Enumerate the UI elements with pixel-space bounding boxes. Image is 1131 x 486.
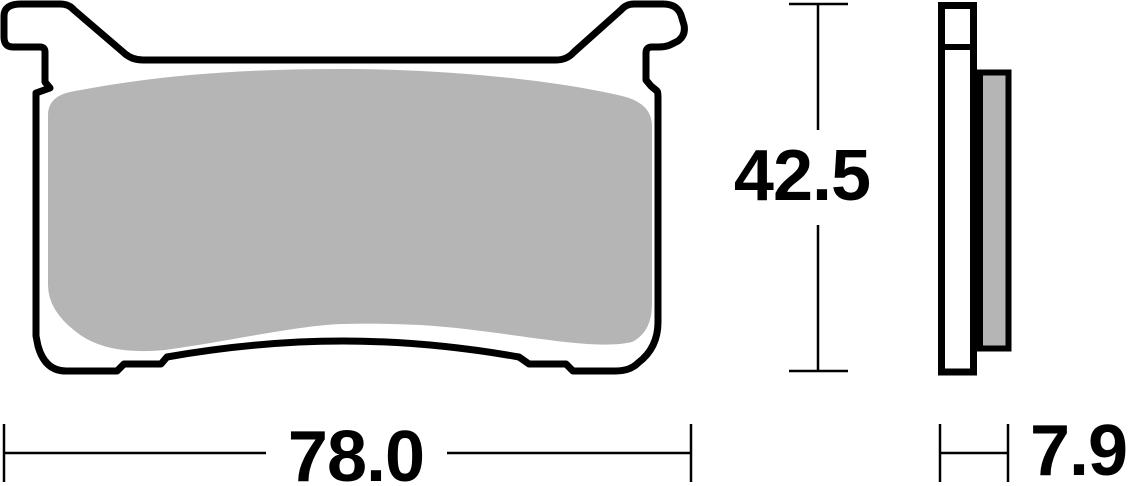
front-view-friction-material [48,69,652,351]
width-dimension-label: 78.0 [256,421,456,486]
side-view-backplate [942,6,974,373]
thickness-dimension-label: 7.9 [1030,415,1127,486]
technical-drawing-canvas: 78.0 42.5 7.9 [0,0,1131,486]
brake-pad-diagram [0,0,1131,486]
thickness-dimension-lines [940,424,1008,482]
height-dimension-label: 42.5 [702,140,902,212]
side-view-friction-material [980,73,1009,349]
